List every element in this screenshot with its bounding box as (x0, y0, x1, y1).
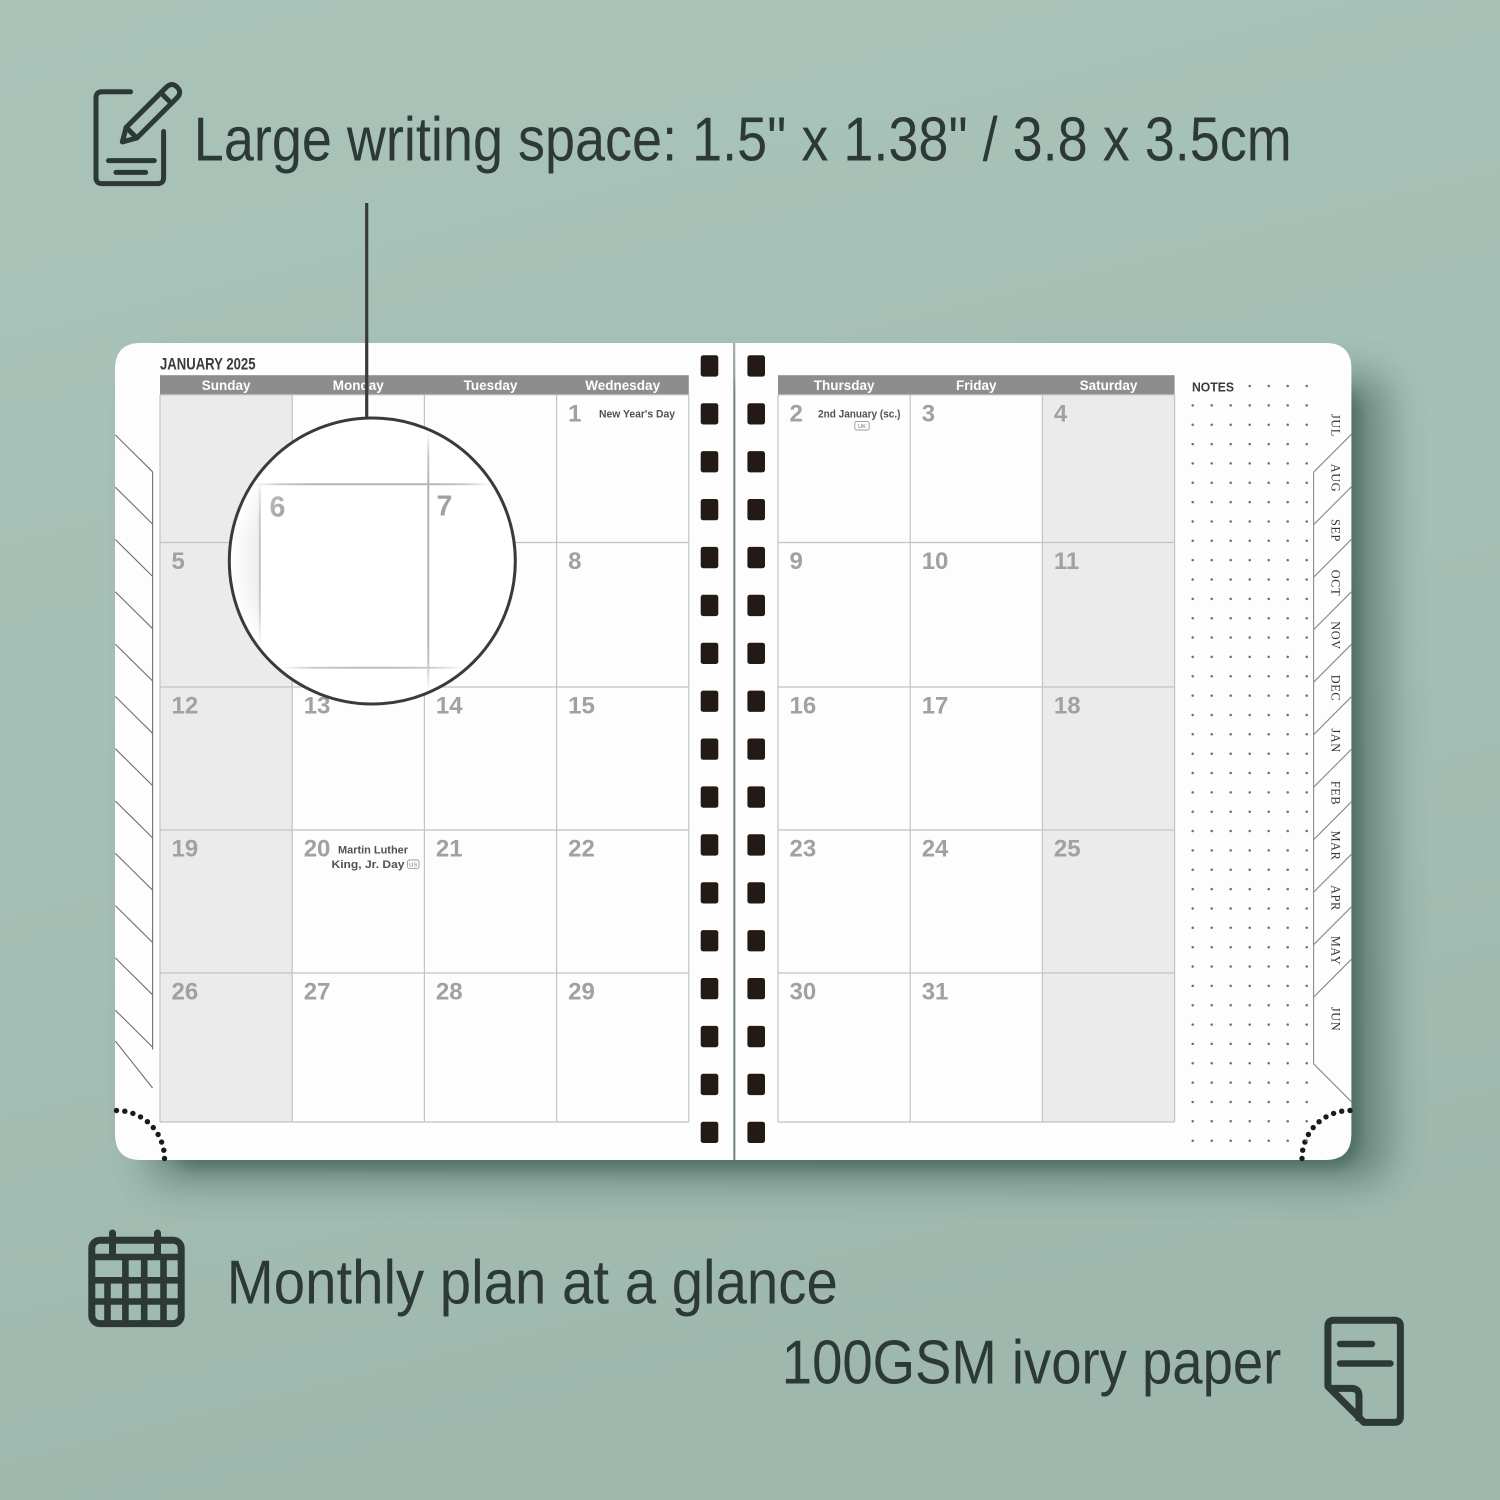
svg-text:17: 17 (922, 693, 949, 720)
svg-text:1: 1 (568, 400, 581, 427)
svg-text:DEC: DEC (1329, 675, 1343, 701)
svg-text:2: 2 (790, 400, 803, 427)
svg-text:APR: APR (1329, 885, 1343, 911)
svg-text:9: 9 (790, 548, 803, 575)
svg-text:22: 22 (568, 836, 595, 863)
svg-text:JANUARY 2025: JANUARY 2025 (160, 356, 256, 374)
svg-text:AUG: AUG (1329, 464, 1343, 492)
svg-text:New Year's Day: New Year's Day (599, 409, 676, 421)
svg-text:SEP: SEP (1329, 519, 1343, 542)
svg-text:JAN: JAN (1329, 728, 1343, 752)
svg-text:16: 16 (790, 693, 817, 720)
svg-text:Monday: Monday (333, 378, 384, 393)
svg-text:Saturday: Saturday (1080, 378, 1138, 393)
svg-text:NOV: NOV (1329, 621, 1343, 649)
svg-text:12: 12 (172, 693, 199, 720)
svg-text:King, Jr. Day: King, Jr. Day (332, 859, 406, 871)
svg-text:MAR: MAR (1329, 831, 1343, 861)
svg-text:14: 14 (436, 693, 463, 720)
svg-text:Thursday: Thursday (814, 378, 875, 393)
svg-text:4: 4 (1054, 400, 1068, 427)
svg-text:Sunday: Sunday (202, 378, 251, 393)
svg-text:Monthly plan at a glance: Monthly plan at a glance (227, 1249, 838, 1318)
svg-text:3: 3 (922, 400, 935, 427)
svg-text:FEB: FEB (1329, 781, 1343, 805)
svg-text:21: 21 (436, 836, 463, 863)
svg-text:18: 18 (1054, 693, 1081, 720)
svg-text:31: 31 (922, 979, 949, 1006)
svg-text:28: 28 (436, 979, 463, 1006)
svg-text:Martin Luther: Martin Luther (338, 845, 409, 857)
svg-text:24: 24 (922, 836, 949, 863)
svg-text:UK: UK (858, 424, 866, 430)
svg-text:OCT: OCT (1329, 570, 1343, 596)
svg-text:19: 19 (172, 836, 199, 863)
svg-text:NOTES: NOTES (1192, 380, 1234, 395)
svg-text:US: US (409, 863, 417, 869)
svg-text:15: 15 (568, 693, 595, 720)
svg-text:8: 8 (568, 548, 581, 575)
svg-text:26: 26 (172, 979, 199, 1006)
svg-text:JUN: JUN (1329, 1007, 1343, 1031)
svg-text:Friday: Friday (956, 378, 997, 393)
svg-text:27: 27 (304, 979, 331, 1006)
svg-text:25: 25 (1054, 836, 1081, 863)
svg-text:10: 10 (922, 548, 949, 575)
svg-text:2nd January (sc.): 2nd January (sc.) (818, 409, 901, 421)
svg-text:5: 5 (172, 548, 185, 575)
svg-text:JUL: JUL (1329, 414, 1343, 437)
svg-text:30: 30 (790, 979, 817, 1006)
svg-text:Tuesday: Tuesday (464, 378, 518, 393)
svg-text:11: 11 (1054, 548, 1079, 575)
svg-text:100GSM ivory paper: 100GSM ivory paper (782, 1328, 1282, 1397)
svg-text:Large writing space: 1.5" x 1.: Large writing space: 1.5" x 1.38" / 3.8 … (194, 105, 1292, 174)
svg-text:MAY: MAY (1329, 936, 1343, 965)
svg-text:20: 20 (304, 836, 331, 863)
svg-text:23: 23 (790, 836, 817, 863)
svg-text:Wednesday: Wednesday (585, 378, 660, 393)
svg-text:29: 29 (568, 979, 595, 1006)
